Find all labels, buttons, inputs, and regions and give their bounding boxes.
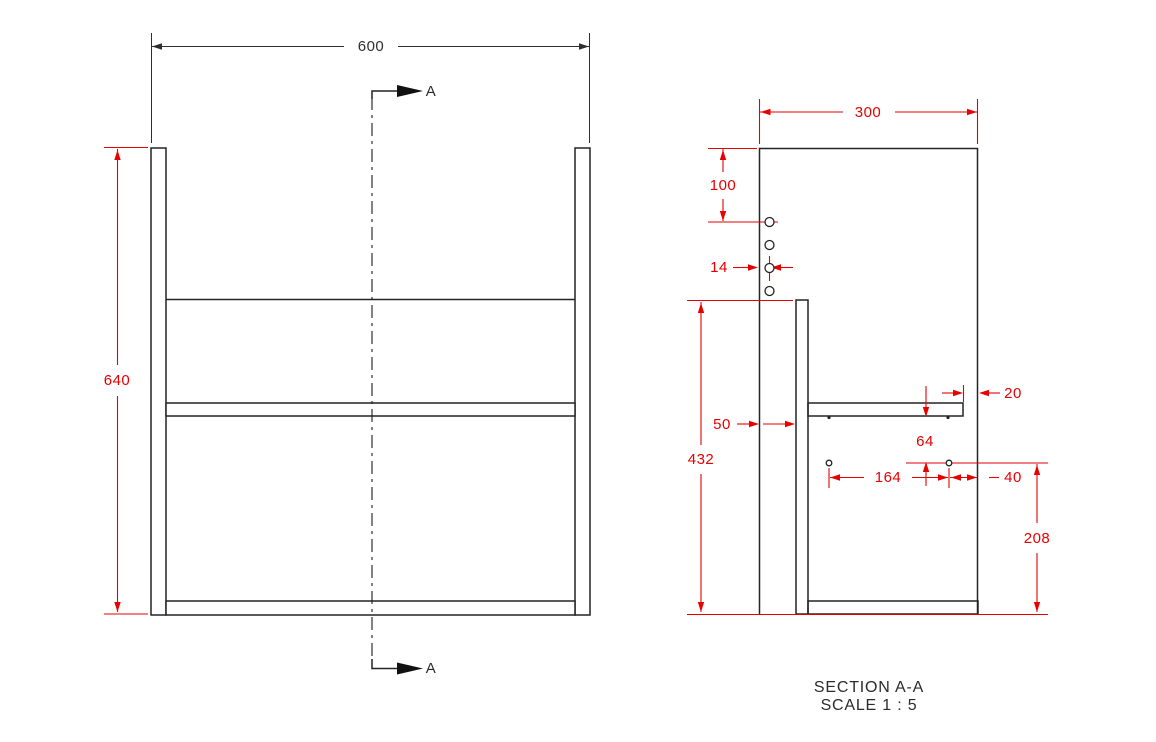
cad-drawing-page: 600 640 A A (0, 0, 1156, 742)
bottom-board-section (808, 601, 978, 614)
dim-hole-offset-label: 14 (710, 259, 728, 276)
shelf-section (808, 403, 963, 416)
dim-arrow (953, 390, 963, 396)
dim-arrow (579, 43, 589, 49)
dim-hole-offset-14: 14 (710, 256, 793, 281)
dim-arrow (114, 602, 120, 612)
right-side-panel (575, 148, 590, 615)
dim-back-height-label: 432 (688, 451, 715, 468)
dim-arrow (967, 474, 977, 480)
dowel-hole (826, 460, 832, 466)
dim-shelf-setback-20: 20 (942, 385, 1022, 402)
dim-height-label: 640 (104, 372, 131, 389)
dowel-point (946, 416, 949, 419)
left-side-panel (151, 148, 166, 615)
dim-shelf-hole-64: 64 (916, 386, 934, 486)
dim-arrow (152, 43, 162, 49)
section-title: SECTION A-A (814, 679, 924, 696)
dim-hole-spacing-label: 164 (875, 469, 902, 486)
dim-width-label: 600 (358, 38, 385, 55)
dim-arrow (720, 211, 726, 221)
dim-arrow (698, 303, 704, 313)
section-cutting-line: A A (372, 83, 436, 677)
dim-hole-height-208: 208 (1024, 464, 1051, 612)
dim-arrow (114, 150, 120, 160)
front-view (151, 148, 590, 615)
shelf-pin-hole (765, 218, 774, 227)
dowel-point (827, 416, 830, 419)
back-panel-section (796, 300, 808, 614)
dim-hole-back-label: 40 (1004, 469, 1022, 486)
section-label-top: A (426, 83, 437, 100)
dim-arrow (749, 421, 759, 427)
middle-shelf (166, 403, 575, 416)
dim-back-height-432: 432 (687, 301, 793, 613)
dim-arrow (748, 264, 758, 270)
technical-drawing-canvas: 600 640 A A (0, 0, 1156, 742)
dim-arrow (830, 474, 840, 480)
section-scale: SCALE 1 : 5 (821, 697, 918, 714)
dim-front-gap-50: 50 (713, 416, 795, 433)
dim-arrow (979, 390, 989, 396)
dim-top-hole-100: 100 (708, 149, 778, 223)
section-view (760, 149, 979, 615)
shelf-pin-hole (765, 241, 774, 250)
dowel-hole (946, 460, 952, 466)
dim-width-600: 600 (152, 33, 590, 143)
dim-height-640: 640 (104, 148, 148, 615)
dim-arrow (938, 474, 948, 480)
dim-arrow (967, 109, 977, 115)
dim-shelf-hole-label: 64 (916, 433, 934, 450)
dim-arrow (720, 150, 726, 160)
side-panel-outline (760, 149, 978, 615)
section-label-bottom: A (426, 660, 437, 677)
dim-front-gap-label: 50 (713, 416, 731, 433)
dim-arrow (1034, 602, 1040, 612)
dim-hole-height-label: 208 (1024, 530, 1051, 547)
shelf-pin-holes (765, 218, 952, 466)
dim-arrow (761, 109, 771, 115)
dim-hole-back-40: 40 (950, 469, 1022, 486)
section-caption: SECTION A-A SCALE 1 : 5 (814, 679, 924, 714)
section-arrow-bottom-icon (397, 663, 423, 675)
dim-arrow (951, 474, 961, 480)
dim-arrow (698, 602, 704, 612)
shelf-pin-hole (765, 287, 774, 296)
bottom-board (166, 601, 575, 615)
dim-arrow (1034, 465, 1040, 475)
dim-shelf-setback-label: 20 (1004, 385, 1022, 402)
section-arrow-top-icon (397, 85, 423, 97)
dim-depth-label: 300 (855, 104, 882, 121)
dim-arrow (785, 421, 795, 427)
dim-depth-300: 300 (760, 99, 978, 144)
shelf-pin-hole (765, 264, 774, 273)
dim-top-hole-label: 100 (710, 177, 737, 194)
dim-hole-spacing-164: 164 (829, 468, 949, 488)
